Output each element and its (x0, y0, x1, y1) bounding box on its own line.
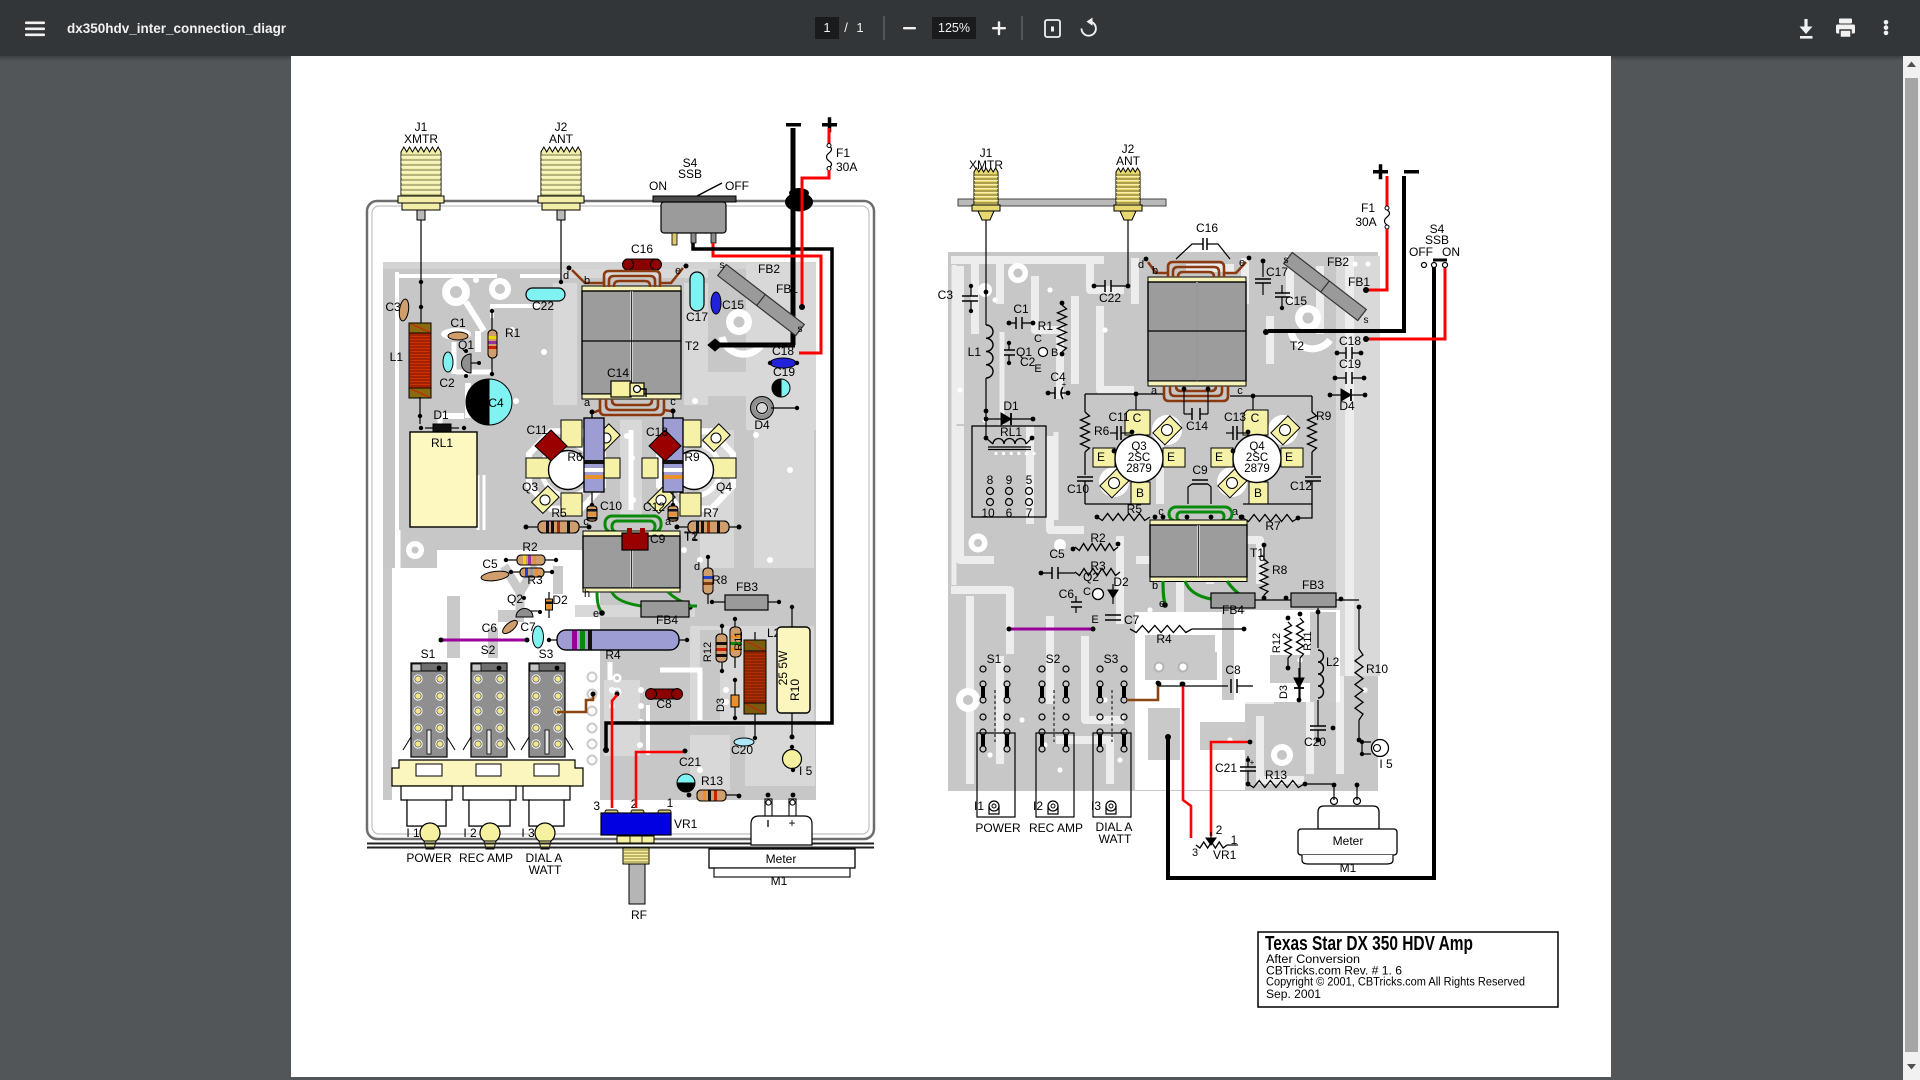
svg-text:REC AMP: REC AMP (1029, 821, 1083, 835)
svg-text:d: d (1138, 259, 1144, 271)
svg-text:L2: L2 (1326, 655, 1340, 669)
svg-text:C10: C10 (1067, 482, 1089, 496)
svg-text:FB4: FB4 (656, 613, 678, 627)
svg-text:I 1: I 1 (406, 826, 420, 840)
svg-text:POWER: POWER (975, 821, 1021, 835)
svg-text:C7: C7 (1124, 613, 1140, 627)
svg-text:C2: C2 (439, 376, 455, 390)
svg-text:M1: M1 (771, 874, 788, 888)
svg-text:S1: S1 (421, 647, 436, 661)
svg-text:a: a (584, 397, 591, 409)
svg-text:R1: R1 (1038, 319, 1054, 333)
svg-text:C17: C17 (686, 310, 708, 324)
svg-text:C17: C17 (1266, 265, 1288, 279)
svg-text:Q4: Q4 (716, 480, 732, 494)
svg-text:3: 3 (1192, 847, 1198, 859)
svg-text:D1: D1 (433, 408, 449, 422)
svg-text:D3: D3 (715, 698, 727, 712)
svg-text:B: B (1136, 486, 1144, 500)
svg-text:I2: I2 (1033, 799, 1043, 813)
svg-text:R4: R4 (605, 648, 621, 662)
svg-text:s: s (1364, 315, 1369, 326)
svg-text:C6: C6 (482, 621, 498, 635)
svg-text:I1: I1 (974, 799, 984, 813)
svg-text:FB2: FB2 (1327, 255, 1349, 269)
svg-text:R9: R9 (684, 450, 700, 464)
svg-text:S3: S3 (539, 647, 554, 661)
svg-text:Meter: Meter (1333, 834, 1364, 848)
svg-text:/: / (844, 20, 848, 35)
svg-text:C22: C22 (532, 299, 554, 313)
svg-text:SSB: SSB (678, 167, 702, 181)
svg-text:e: e (1239, 257, 1245, 269)
svg-text:s: s (1284, 255, 1289, 266)
svg-text:D3: D3 (1278, 685, 1290, 699)
svg-text:Sep. 2001: Sep. 2001 (1266, 989, 1321, 1001)
svg-text:I3: I3 (1091, 799, 1101, 813)
svg-text:2: 2 (1216, 823, 1223, 837)
svg-text:FB3: FB3 (1302, 578, 1324, 592)
svg-text:C15: C15 (722, 298, 744, 312)
svg-text:I 5: I 5 (799, 764, 813, 778)
svg-text:c: c (670, 396, 676, 408)
svg-text:ON: ON (1442, 245, 1460, 259)
svg-text:D1: D1 (1003, 399, 1019, 413)
svg-text:D4: D4 (1339, 399, 1355, 413)
svg-text:S2: S2 (481, 643, 496, 657)
svg-text:F1: F1 (1361, 201, 1375, 215)
svg-text:S3: S3 (1104, 652, 1119, 666)
svg-text:VR1: VR1 (1213, 848, 1237, 862)
svg-text:C11: C11 (526, 423, 547, 437)
svg-text:C: C (1034, 333, 1042, 345)
svg-text:R13: R13 (1265, 768, 1287, 782)
svg-text:C22: C22 (1099, 291, 1121, 305)
svg-text:C14: C14 (607, 366, 629, 380)
svg-text:R12: R12 (702, 642, 714, 662)
svg-text:C18: C18 (772, 344, 794, 358)
svg-text:S2: S2 (1046, 652, 1061, 666)
svg-text:C11: C11 (1108, 410, 1129, 424)
svg-text:R9: R9 (1316, 409, 1332, 423)
svg-text:M1: M1 (1340, 861, 1357, 875)
svg-text:R5: R5 (1127, 502, 1143, 516)
svg-text:R10: R10 (1366, 662, 1388, 676)
svg-text:T1: T1 (684, 530, 698, 544)
svg-text:1: 1 (667, 796, 674, 810)
svg-text:C9: C9 (1192, 463, 1208, 477)
svg-text:E: E (1091, 614, 1098, 626)
svg-text:C14: C14 (1186, 419, 1208, 433)
svg-text:Q3: Q3 (522, 480, 538, 494)
svg-text:R7: R7 (1265, 519, 1281, 533)
svg-text:B: B (1254, 486, 1262, 500)
svg-text:C: C (1083, 586, 1091, 598)
svg-text:c: c (1237, 385, 1243, 397)
svg-text:FB1: FB1 (776, 282, 798, 296)
svg-text:C20: C20 (731, 743, 753, 757)
svg-text:FB1: FB1 (1348, 275, 1370, 289)
svg-text:E: E (1097, 450, 1105, 464)
svg-text:+: + (1062, 380, 1067, 389)
svg-text:FB3: FB3 (736, 580, 758, 594)
svg-text:a: a (665, 516, 672, 528)
svg-text:R8: R8 (712, 573, 728, 587)
svg-text:T2: T2 (1290, 339, 1304, 353)
svg-text:REC AMP: REC AMP (459, 851, 513, 865)
svg-text:RL1: RL1 (1000, 425, 1022, 439)
svg-text:FB4: FB4 (1222, 603, 1244, 617)
svg-text:F1: F1 (836, 146, 850, 160)
svg-text:OFF: OFF (725, 179, 749, 193)
svg-text:30A: 30A (836, 160, 857, 174)
svg-text:R11: R11 (733, 631, 745, 650)
svg-text:C: C (1251, 411, 1260, 425)
svg-text:6: 6 (1006, 506, 1013, 520)
svg-text:C5: C5 (1049, 547, 1065, 561)
svg-text:125%: 125% (938, 21, 970, 35)
svg-text:C19: C19 (773, 365, 795, 379)
svg-text:Meter: Meter (766, 852, 797, 866)
svg-text:d: d (694, 561, 700, 573)
svg-text:R2: R2 (522, 540, 538, 554)
svg-text:C13: C13 (1224, 410, 1246, 424)
svg-text:B: B (1051, 347, 1058, 359)
svg-text:b: b (584, 275, 590, 287)
svg-text:FB2: FB2 (758, 262, 780, 276)
svg-text:a: a (1151, 385, 1158, 397)
svg-text:R10: R10 (788, 679, 802, 701)
svg-text:C2: C2 (1020, 355, 1036, 369)
svg-text:R7: R7 (703, 506, 719, 520)
svg-text:e: e (593, 608, 599, 620)
svg-text:Q2: Q2 (507, 592, 523, 606)
svg-text:R3: R3 (527, 573, 543, 587)
svg-text:R8: R8 (1272, 563, 1288, 577)
svg-text:8: 8 (987, 473, 994, 487)
svg-text:Q2: Q2 (1083, 570, 1099, 584)
svg-text:+: + (1250, 758, 1255, 767)
svg-text:+: + (788, 816, 795, 830)
svg-text:C7: C7 (520, 620, 536, 634)
svg-text:5: 5 (1026, 473, 1033, 487)
svg-text:R2: R2 (1090, 531, 1106, 545)
svg-text:L1: L1 (390, 350, 404, 364)
svg-text:3: 3 (593, 799, 600, 813)
svg-text:I 3: I 3 (521, 826, 535, 840)
svg-text:RL1: RL1 (431, 436, 453, 450)
svg-text:b: b (1152, 580, 1158, 592)
svg-text:T2: T2 (685, 339, 699, 353)
svg-text:s: s (798, 324, 803, 335)
svg-text:9: 9 (1006, 473, 1013, 487)
svg-text:D4: D4 (754, 418, 770, 432)
svg-text:e: e (675, 265, 681, 277)
svg-text:ANT: ANT (1116, 154, 1141, 168)
svg-text:R1: R1 (505, 326, 521, 340)
svg-text:2879: 2879 (1244, 463, 1270, 475)
svg-text:c: c (583, 516, 589, 528)
svg-text:R13: R13 (701, 774, 723, 788)
svg-text:I 5: I 5 (1379, 757, 1393, 771)
svg-text:h: h (584, 588, 590, 600)
svg-text:D2: D2 (552, 593, 568, 607)
svg-text:E: E (1167, 450, 1175, 464)
svg-text:C4: C4 (488, 396, 504, 410)
svg-text:R5: R5 (551, 506, 567, 520)
svg-text:C16: C16 (631, 242, 653, 256)
svg-text:7: 7 (1026, 506, 1033, 520)
svg-text:R11: R11 (1302, 631, 1314, 650)
svg-text:C3: C3 (938, 288, 954, 302)
svg-text:C21: C21 (679, 755, 701, 769)
svg-text:C8: C8 (1225, 663, 1241, 677)
svg-text:POWER: POWER (406, 851, 452, 865)
svg-text:WATT: WATT (1099, 832, 1132, 846)
svg-text:Texas Star DX 350 HDV Amp: Texas Star DX 350 HDV Amp (1265, 932, 1473, 955)
svg-text:R6: R6 (1094, 424, 1110, 438)
svg-text:ON: ON (649, 179, 667, 193)
svg-text:E: E (1285, 450, 1293, 464)
svg-text:C: C (1133, 411, 1142, 425)
svg-text:OFF: OFF (1409, 245, 1433, 259)
svg-text:WATT: WATT (529, 863, 562, 877)
svg-text:E: E (1034, 363, 1041, 375)
svg-text:S1: S1 (987, 652, 1002, 666)
svg-text:R6: R6 (567, 450, 583, 464)
svg-text:C8: C8 (656, 697, 672, 711)
svg-text:1: 1 (856, 20, 863, 35)
svg-text:Copyright © 2001, CBTricks.com: Copyright © 2001, CBTricks.com All Right… (1266, 977, 1525, 989)
svg-text:10: 10 (981, 506, 995, 520)
svg-text:VR1: VR1 (674, 817, 698, 831)
svg-text:E: E (1215, 450, 1223, 464)
svg-text:C15: C15 (1285, 294, 1307, 308)
svg-text:C1: C1 (450, 316, 466, 330)
svg-text:After Conversion: After Conversion (1266, 954, 1360, 966)
svg-text:R12: R12 (1271, 633, 1283, 653)
svg-text:2879: 2879 (1126, 463, 1152, 475)
svg-text:C10: C10 (600, 499, 622, 513)
svg-text:C13: C13 (646, 425, 668, 439)
svg-text:XMTR: XMTR (404, 132, 438, 146)
svg-text:30A: 30A (1355, 215, 1376, 229)
svg-text:s: s (720, 260, 725, 271)
svg-text:d: d (563, 270, 569, 282)
svg-text:D2: D2 (1113, 575, 1129, 589)
svg-text:C3: C3 (385, 300, 401, 314)
svg-text:I 2: I 2 (463, 826, 477, 840)
svg-text:ANT: ANT (549, 132, 574, 146)
svg-text:e: e (1159, 598, 1165, 610)
svg-text:C12: C12 (1290, 479, 1312, 493)
svg-text:RF: RF (631, 908, 647, 922)
svg-text:dx350hdv_inter_connection_diag: dx350hdv_inter_connection_diagr (67, 21, 287, 36)
svg-text:C12: C12 (643, 500, 665, 514)
svg-text:C16: C16 (1196, 221, 1218, 235)
svg-text:C1: C1 (1013, 302, 1029, 316)
svg-text:C21: C21 (1215, 761, 1237, 775)
svg-text:C6: C6 (1059, 587, 1075, 601)
svg-text:C18: C18 (1339, 334, 1361, 348)
svg-text:R4: R4 (1156, 632, 1172, 646)
svg-text:b: b (1152, 265, 1158, 277)
svg-text:C9: C9 (650, 532, 666, 546)
svg-text:L1: L1 (968, 345, 982, 359)
svg-text:XMTR: XMTR (969, 158, 1003, 172)
svg-text:C20: C20 (1304, 735, 1326, 749)
svg-text:1: 1 (823, 20, 830, 35)
svg-text:C19: C19 (1339, 357, 1361, 371)
svg-text:C5: C5 (482, 557, 498, 571)
